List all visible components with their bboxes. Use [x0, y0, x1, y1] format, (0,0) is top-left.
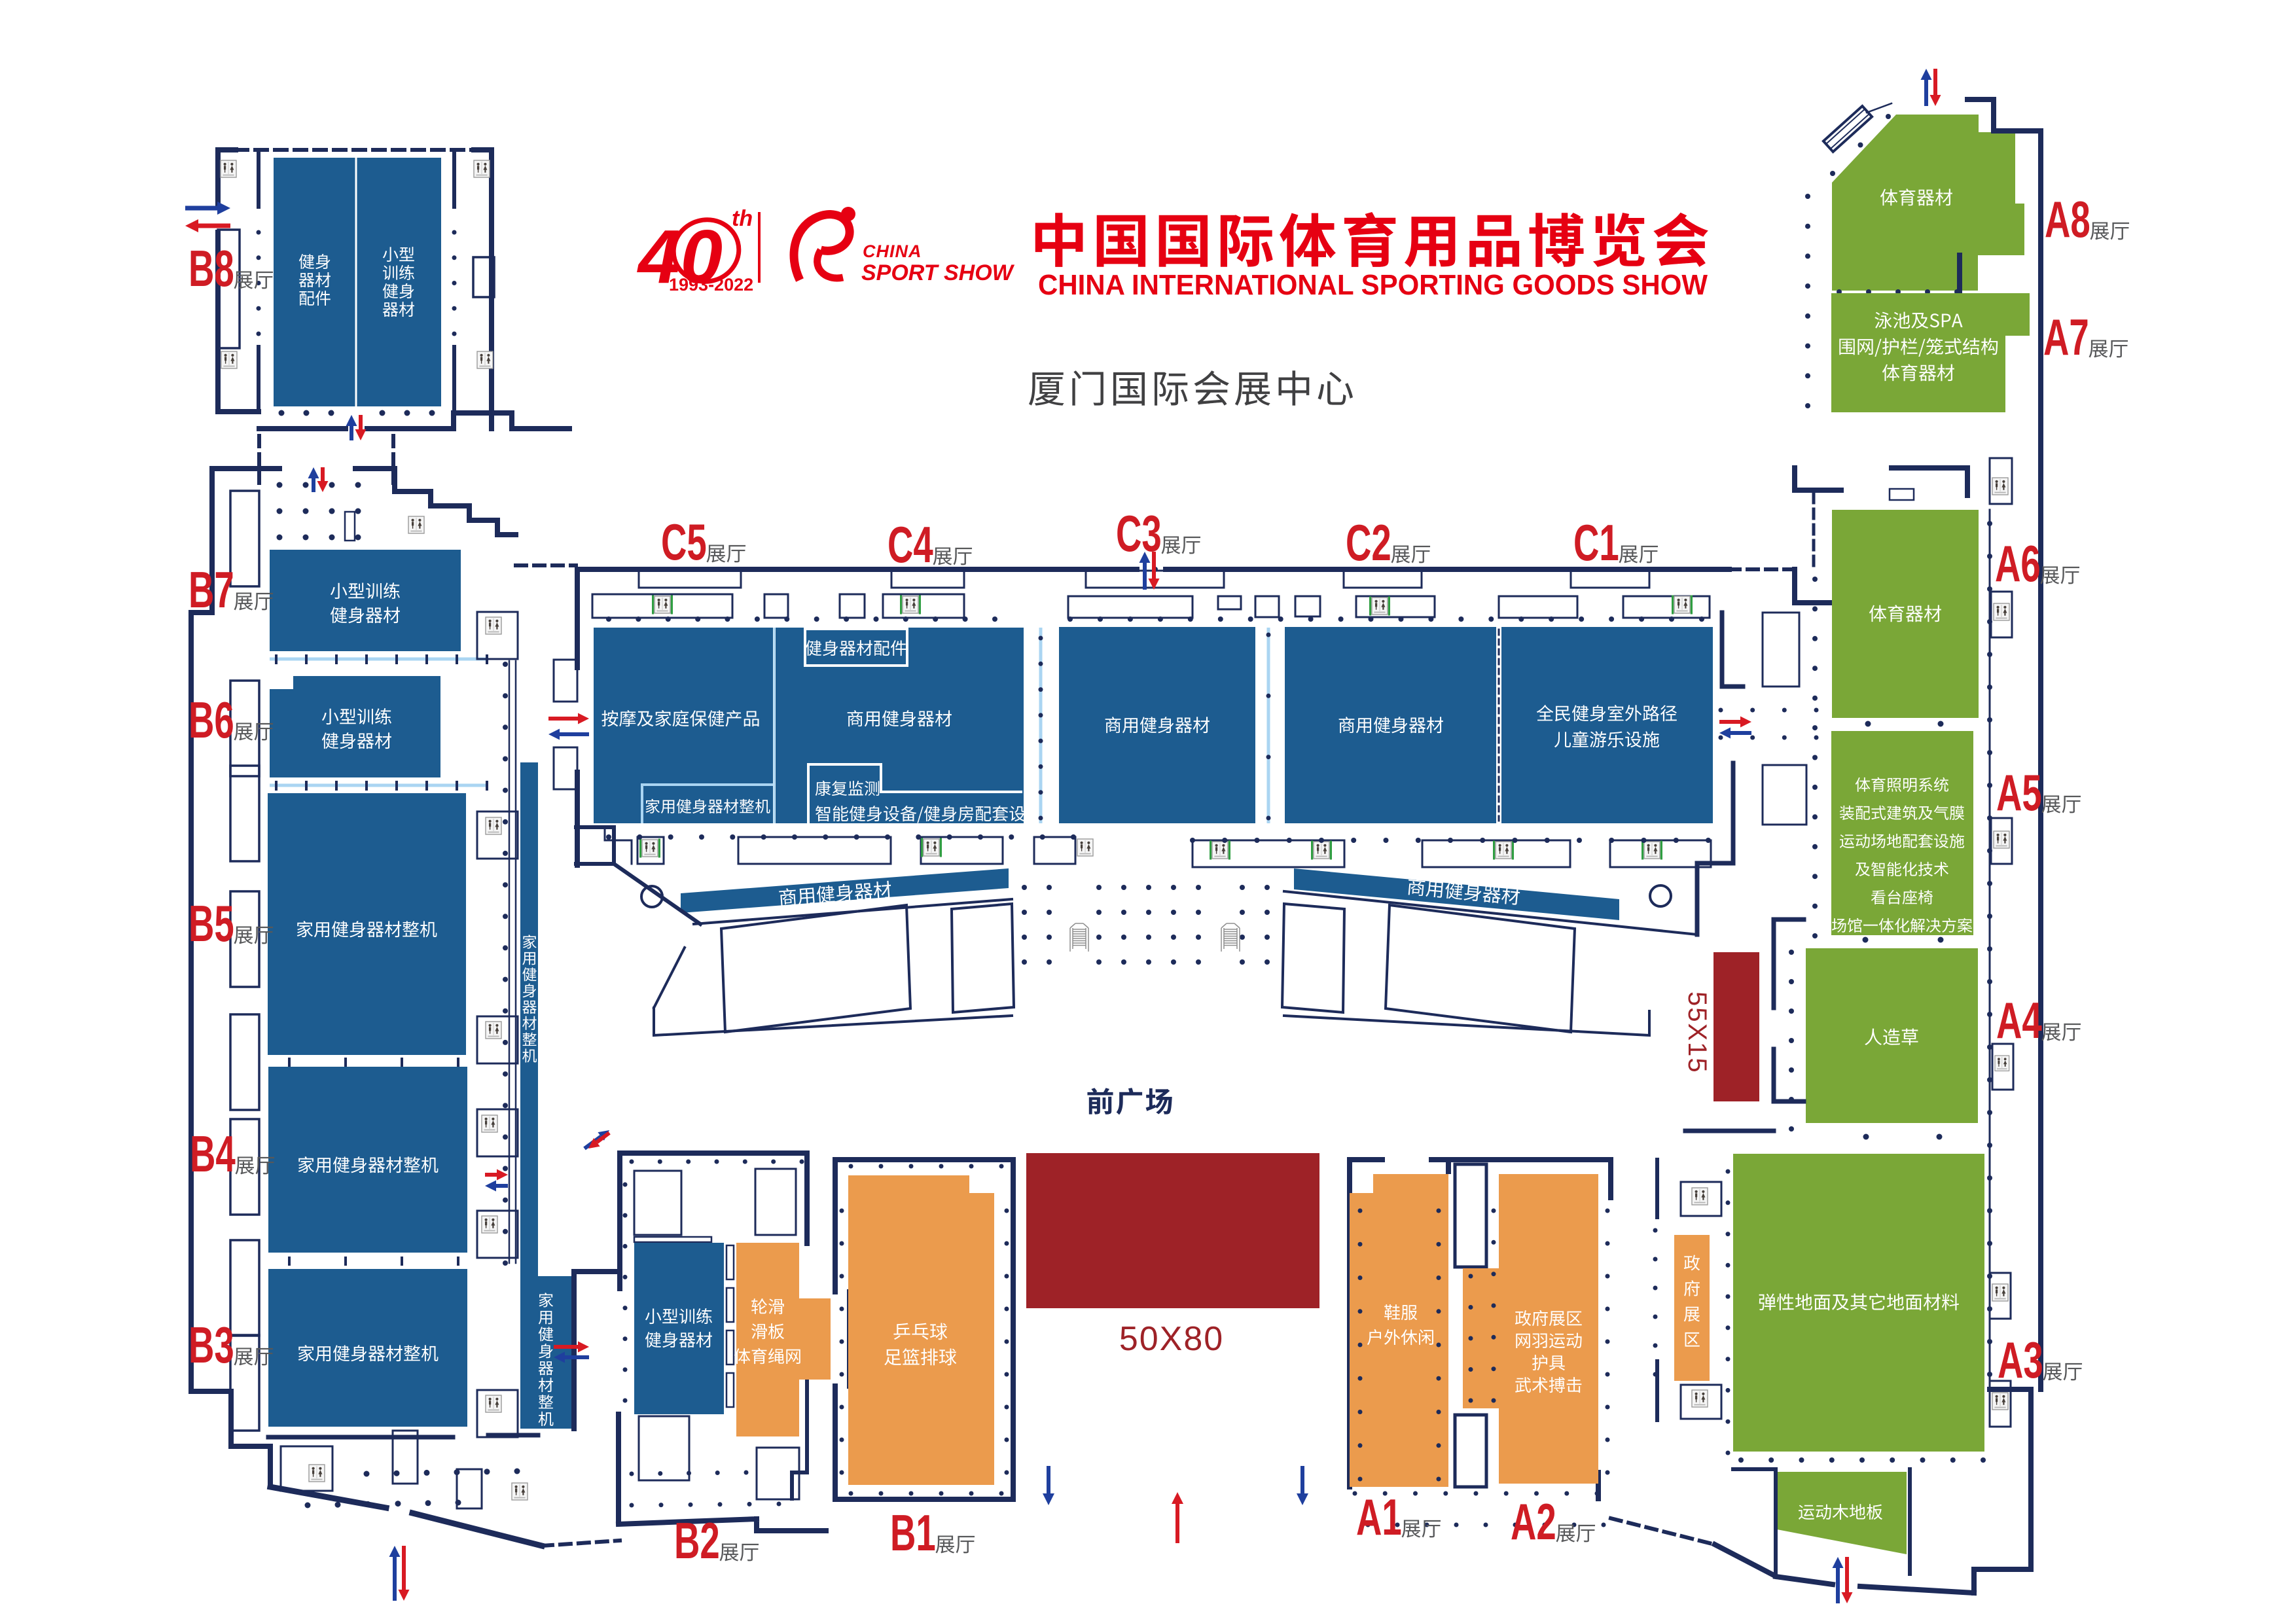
- svg-text:B4: B4: [190, 1126, 236, 1183]
- svg-text:C4: C4: [888, 516, 933, 573]
- svg-text:55X15: 55X15: [1683, 991, 1712, 1074]
- svg-text:CHINA: CHINA: [863, 241, 922, 261]
- svg-text:C1: C1: [1573, 514, 1619, 571]
- svg-text:C5: C5: [661, 514, 707, 571]
- svg-text:1993-2022: 1993-2022: [669, 275, 753, 294]
- svg-text:A8: A8: [2045, 191, 2090, 248]
- svg-text:B2: B2: [674, 1512, 720, 1569]
- svg-text:A5: A5: [1996, 764, 2042, 821]
- svg-text:A1: A1: [1356, 1489, 1402, 1546]
- svg-text:C3: C3: [1116, 505, 1162, 562]
- svg-text:B1: B1: [890, 1505, 936, 1561]
- svg-text:A4: A4: [1996, 992, 2042, 1049]
- svg-text:A7: A7: [2043, 309, 2089, 366]
- svg-text:B8: B8: [188, 240, 234, 297]
- svg-text:B3: B3: [188, 1317, 234, 1374]
- svg-text:SPORT SHOW: SPORT SHOW: [861, 260, 1015, 285]
- svg-text:A6: A6: [1995, 535, 2041, 592]
- svg-text:th: th: [732, 206, 753, 231]
- svg-text:B7: B7: [188, 562, 234, 618]
- svg-text:C2: C2: [1346, 514, 1391, 571]
- svg-text:CHINA INTERNATIONAL SPORTING G: CHINA INTERNATIONAL SPORTING GOODS SHOW: [1038, 269, 1708, 301]
- svg-text:B6: B6: [188, 692, 234, 749]
- svg-text:A2: A2: [1511, 1493, 1556, 1550]
- svg-text:50X80: 50X80: [1119, 1320, 1224, 1358]
- svg-text:B5: B5: [188, 895, 234, 952]
